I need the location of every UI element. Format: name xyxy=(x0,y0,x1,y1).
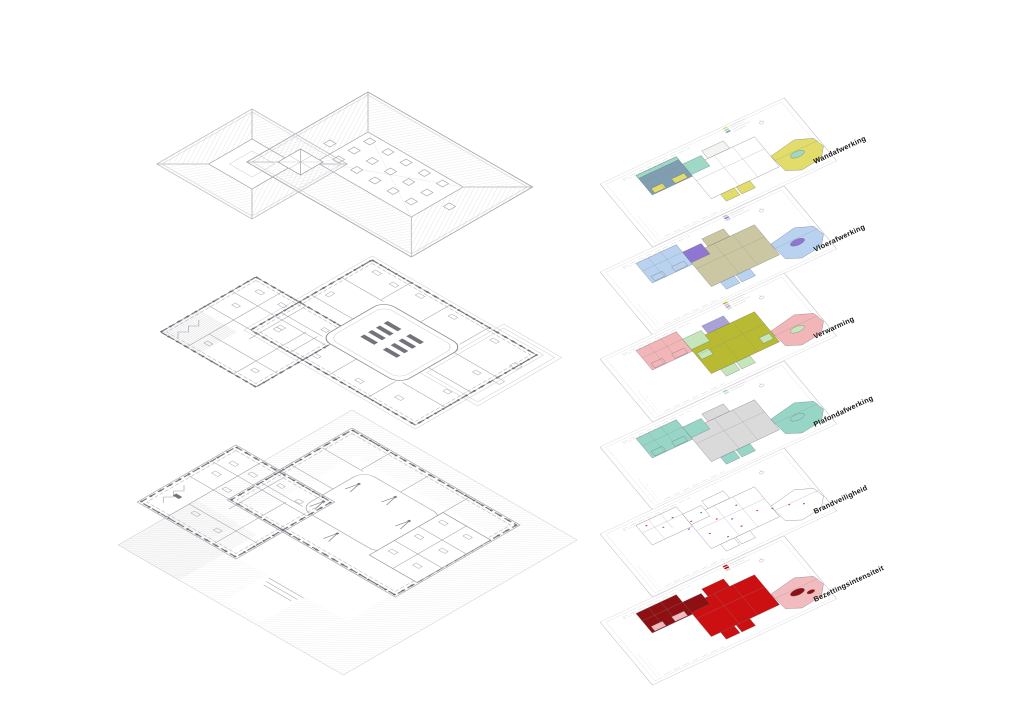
floorplan-layer-stack: Wandafwerking xyxy=(600,98,886,685)
diagram-svg: Wandafwerking xyxy=(0,0,1024,723)
ground-floor-axonometric xyxy=(90,394,577,675)
architectural-diagram-page: Wandafwerking xyxy=(0,0,1024,723)
roof-axonometric xyxy=(157,67,533,284)
exploded-axonometric-stack xyxy=(90,67,577,675)
